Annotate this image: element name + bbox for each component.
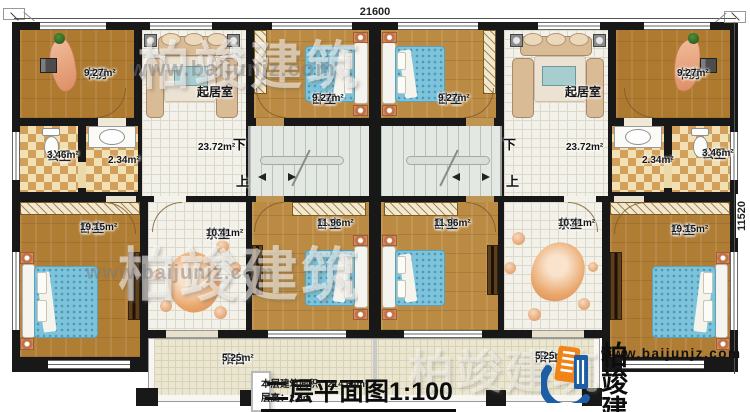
bed	[715, 264, 728, 338]
nightstand	[382, 105, 397, 116]
stair-arrow	[482, 173, 490, 181]
window	[644, 22, 710, 30]
floor-area-text: 本层建筑面积：214.64m²	[261, 378, 368, 392]
pillow	[703, 272, 713, 294]
corner-leader	[23, 12, 34, 22]
room-area: 11.96m²	[434, 218, 471, 229]
room-area: 9.27m²	[677, 68, 709, 79]
window	[622, 360, 704, 369]
nightstand	[353, 309, 368, 320]
nightstand	[382, 32, 397, 43]
bed	[354, 246, 368, 308]
room-area: 3.46m²	[702, 148, 734, 159]
room-area: 2.34m²	[108, 155, 140, 166]
room-area: 23.72m²	[566, 142, 603, 153]
window	[398, 22, 478, 30]
window	[12, 252, 20, 330]
wardrobe	[483, 30, 496, 94]
toilet	[42, 128, 60, 136]
sofa-cushion	[161, 33, 181, 46]
window	[12, 132, 20, 180]
toilet	[691, 128, 709, 136]
room-area: 23.72m²	[198, 142, 235, 153]
door-opening	[256, 196, 284, 202]
floor-height-text: 层高：2.9m	[261, 392, 368, 406]
pillow	[344, 76, 353, 94]
nightstand	[382, 309, 397, 320]
tea-stone	[216, 240, 229, 253]
side-table	[593, 34, 606, 47]
dimension-top-value: 21600	[340, 6, 410, 18]
pillow	[397, 256, 406, 274]
door-opening	[78, 162, 86, 188]
door-opening	[98, 118, 126, 126]
tea-stone	[588, 262, 598, 272]
stair-up-label: 上	[506, 171, 519, 190]
tea-stone	[229, 262, 241, 274]
tea-stone	[504, 262, 516, 274]
sofa-cushion	[184, 33, 204, 46]
door-opening	[256, 118, 284, 126]
pillow	[344, 280, 353, 298]
nightstand	[20, 338, 34, 350]
nightstand	[382, 235, 397, 246]
pillow	[703, 300, 713, 322]
tea-stone	[152, 270, 162, 280]
tv-cabinet	[487, 245, 498, 295]
logo-icon	[541, 343, 595, 403]
plant	[54, 33, 65, 44]
bed	[354, 42, 368, 104]
pillow	[37, 272, 47, 294]
nightstand	[716, 252, 730, 264]
sink	[99, 129, 125, 145]
room-area: 9.27m²	[438, 93, 470, 104]
tea-stone	[160, 300, 172, 312]
brand-url: www.baijunjz.com	[601, 347, 742, 361]
wardrobe	[292, 202, 366, 216]
side-table	[144, 34, 157, 47]
balcony-door	[532, 330, 584, 338]
room-area: 19.15m²	[80, 222, 117, 233]
pillow	[397, 76, 406, 94]
bed	[382, 42, 396, 104]
door-opening	[466, 196, 494, 202]
window	[48, 360, 130, 369]
title-block: 二层平面图1:100 本层建筑面积：214.64m² 层高：2.9m	[251, 371, 271, 412]
stair-up-label: 上	[236, 171, 249, 190]
balcony-post	[486, 390, 506, 406]
window	[272, 22, 352, 30]
nightstand	[353, 235, 368, 246]
pillow	[397, 52, 406, 70]
tea-stone	[512, 232, 525, 245]
room-area: 11.96m²	[317, 218, 354, 229]
dimension-line-top	[14, 18, 736, 19]
window	[150, 22, 212, 30]
window	[730, 252, 738, 330]
stair-down-label: 下	[503, 134, 516, 153]
tea-stone	[528, 308, 541, 321]
room-name: 起居室	[565, 86, 601, 99]
sink	[625, 129, 651, 145]
tv-cabinet	[610, 252, 622, 320]
wardrobe	[384, 202, 458, 216]
window	[268, 330, 346, 338]
sofa-cushion	[546, 33, 566, 46]
coffee-table	[542, 66, 576, 86]
room-area: 10.41m²	[206, 228, 243, 239]
tea-stone	[578, 298, 590, 310]
nightstand	[20, 252, 34, 264]
door-opening	[614, 196, 644, 202]
door-opening	[466, 118, 494, 126]
stair-arrow	[288, 173, 296, 181]
door-opening	[624, 118, 652, 126]
dimension-right-value: 11520	[736, 194, 748, 238]
window	[538, 22, 600, 30]
balcony-door	[166, 330, 218, 338]
pillow	[397, 280, 406, 298]
sofa-cushion	[523, 33, 543, 46]
side-table	[510, 34, 523, 47]
sofa-cushion	[207, 33, 227, 46]
tea-stone	[214, 306, 227, 319]
window	[40, 22, 106, 30]
door-opening	[106, 196, 136, 202]
stair-arrow	[258, 173, 266, 181]
room-area: 3.46m²	[47, 150, 79, 161]
nightstand	[353, 105, 368, 116]
plan-info: 本层建筑面积：214.64m² 层高：2.9m	[261, 378, 368, 406]
room-area: 9.27m²	[84, 68, 116, 79]
tv-cabinet	[252, 245, 263, 295]
sofa	[512, 58, 534, 118]
plant	[688, 33, 699, 44]
room-name: 起居室	[197, 86, 233, 99]
pillow	[344, 52, 353, 70]
armchair	[146, 58, 164, 118]
pillow	[37, 300, 47, 322]
floor-plan: 21600 11520	[0, 0, 750, 412]
brand-logo: 柏竣建筑 www.baijunjz.com	[541, 343, 601, 403]
pillow	[344, 256, 353, 274]
room-area: 19.15m²	[671, 224, 708, 235]
sofa-cushion	[569, 33, 589, 46]
coffee-table	[174, 66, 208, 86]
room-area: 5.25m²	[222, 353, 254, 364]
room-area: 2.34m²	[642, 155, 674, 166]
room-area: 9.27m²	[312, 93, 344, 104]
side-table	[227, 34, 240, 47]
bed	[382, 246, 396, 308]
nightstand	[353, 32, 368, 43]
room-area: 10.41m²	[558, 218, 595, 229]
balcony-post	[136, 388, 158, 406]
tv-cabinet	[128, 252, 140, 320]
computer-monitor	[40, 58, 57, 73]
wardrobe	[254, 30, 267, 94]
stair-handrail	[406, 156, 490, 165]
window	[404, 330, 482, 338]
stair-arrow	[452, 173, 460, 181]
